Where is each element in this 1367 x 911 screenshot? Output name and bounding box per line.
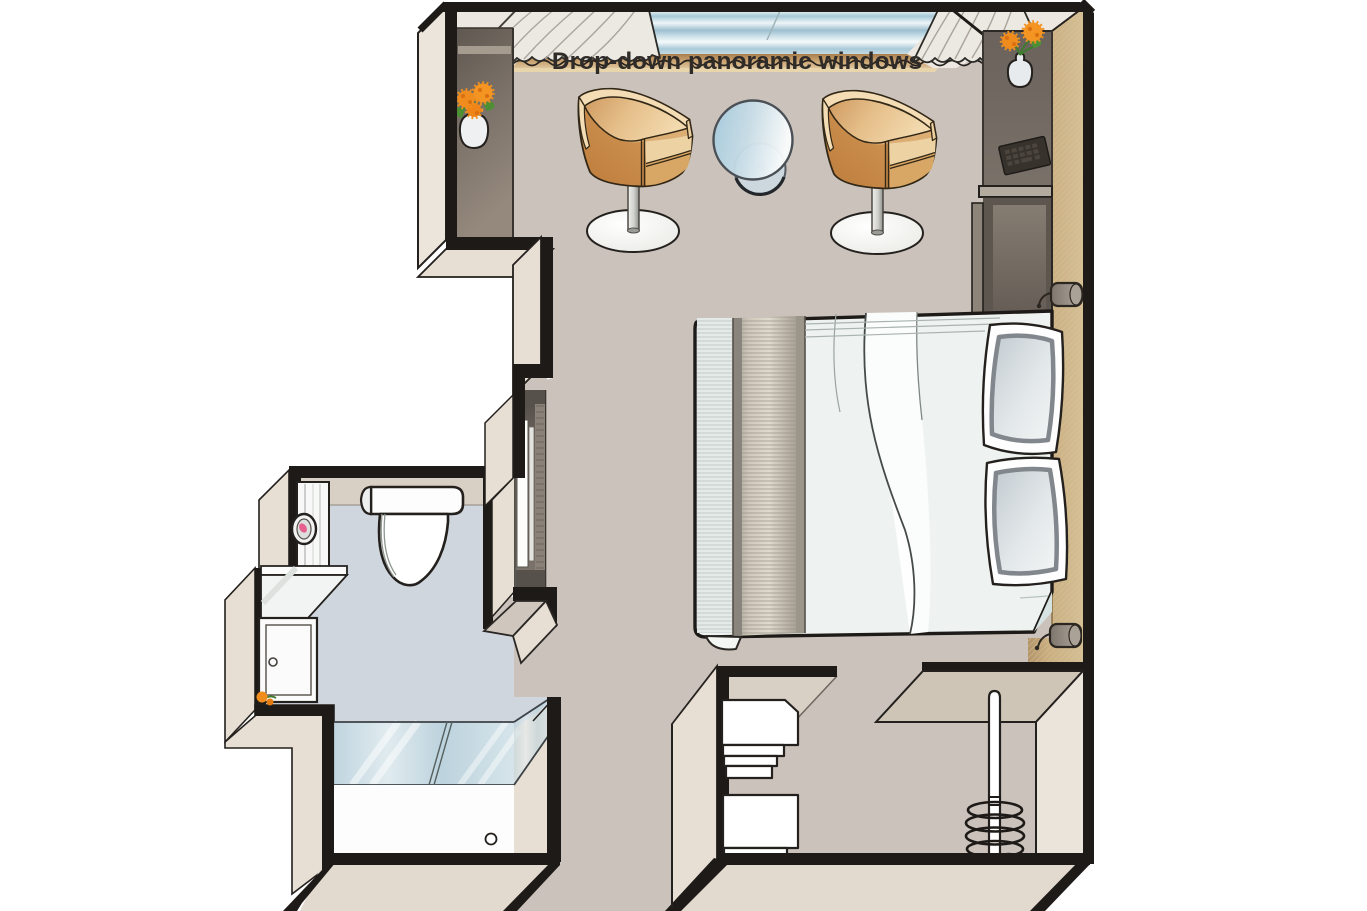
svg-text:Drop-down panoramic windows: Drop-down panoramic windows — [552, 48, 922, 75]
